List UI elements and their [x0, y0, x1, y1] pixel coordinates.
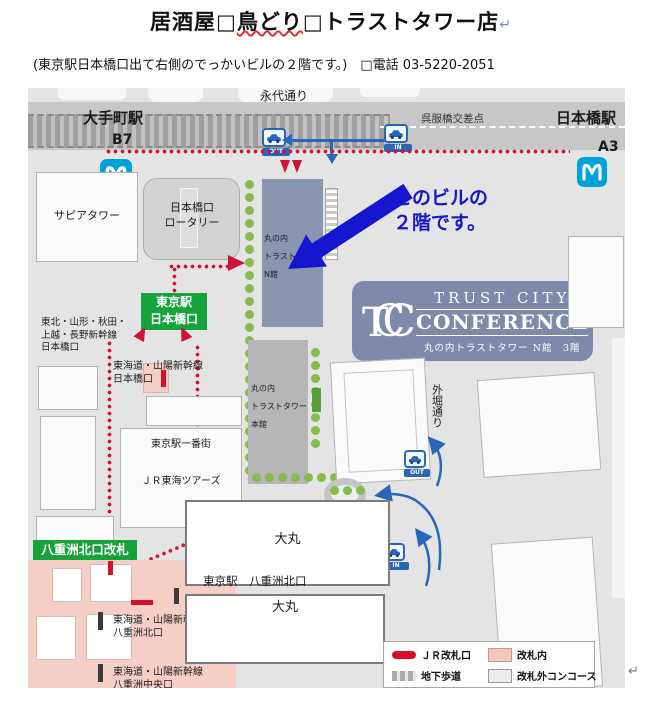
map-building [148, 88, 203, 102]
car-route-line [292, 139, 386, 142]
inside-gate-swatch-icon [488, 648, 512, 662]
map-building [38, 366, 98, 410]
tcc-wordmark: TRUST CITY CONFERENCE 丸の内トラストタワー N館 3階 [416, 289, 588, 354]
route-arrow-icon [228, 255, 245, 271]
concourse-swatch-icon [488, 669, 512, 683]
jr-gate-tick [108, 561, 113, 575]
map-building [477, 372, 602, 478]
sapia-tower-label: サピアタワー [36, 210, 138, 223]
gate-tick [98, 664, 103, 682]
tohoku-shinkansen-label: 東北・山形・秋田・ 上越・長野新幹線 日本橋口 [41, 317, 141, 355]
tokyo-nihombashi-exit-badge: 東京駅 日本橋口 [141, 293, 207, 330]
metro-m-glyph [580, 160, 604, 184]
tokyo-yaesu-north-label: 東京駅 八重洲北口 [203, 575, 353, 588]
tree-row [328, 484, 368, 497]
title-part1: 居酒屋□ [150, 10, 237, 34]
walking-route-dotted [172, 266, 177, 294]
gate-tick [174, 588, 179, 604]
map-legend: ＪＲ改札口 改札内 地下歩道 改札外コンコース [383, 641, 595, 688]
underpass-swatch-icon [392, 671, 416, 681]
gofukubashi-crossing-label: 呉服橋交差点 [421, 113, 484, 126]
otemachi-station-label: 大手町駅 [83, 112, 143, 125]
station-area-map: 永代通り 大手町駅 B7 呉服橋交差点 日本橋駅 A3 OUT IN [28, 88, 625, 688]
eitai-dori-label: 永代通り [260, 90, 360, 103]
map-building [58, 88, 126, 100]
title-part2: □トラストタワー店 [303, 10, 499, 34]
parking-car-icon [384, 124, 408, 143]
nihombashi-station-label: 日本橋駅 [556, 112, 616, 125]
map-building [52, 568, 82, 602]
map-building [568, 236, 624, 328]
legend-item-inside-gate: 改札内 [488, 647, 600, 662]
tcc-conference-badge: TCC TRUST CITY CONFERENCE 丸の内トラストタワー N館 … [352, 281, 593, 361]
jr-gate-swatch-icon [392, 651, 416, 659]
tokaido-yaesu-center-label: 東海道・山陽新幹線 八重洲中央口 [113, 667, 218, 688]
tcc-trust-city: TRUST CITY [416, 289, 588, 310]
jr-tours-label: ＪＲ東海ツアーズ [120, 476, 242, 489]
ichibangai-label: 東京駅一番街 [120, 439, 242, 452]
daimaru-lower-label: 大丸 [185, 602, 385, 615]
map-building [612, 338, 625, 598]
jr-gate-tick [131, 600, 153, 605]
access-map-document: 居酒屋□鳥どり□トラストタワー店↵ (東京駅日本橋口出て右側のでっかいビルの２階… [0, 0, 662, 702]
car-route-arrow-icon [282, 134, 292, 146]
nihombashi-exit-a3-label: A3 [598, 141, 619, 154]
text-cursor-return-mark: ↵ [628, 664, 639, 679]
map-building [40, 416, 96, 510]
subtitle-phone-line: (東京駅日本橋口出て右側のでっかいビルの２階です。) □電話 03-5220-2… [33, 54, 643, 73]
car-route-curve [388, 526, 436, 588]
rotary-label: 日本橋口 ロータリー [148, 200, 236, 230]
yaesu-north-gate-badge: 八重洲北口改札 [33, 540, 137, 560]
map-building [146, 396, 242, 426]
legend-item-underpass: 地下歩道 [392, 668, 488, 683]
car-route-arrow-icon [326, 154, 338, 164]
tcc-monogram-logo: TCC [362, 296, 416, 347]
legend-item-jr-gate: ＪＲ改札口 [392, 647, 488, 662]
walking-route-dotted [107, 340, 112, 540]
tcc-conference: CONFERENCE [416, 310, 588, 336]
return-mark-icon: ↵ [499, 17, 512, 33]
map-building [36, 616, 76, 660]
route-arrow-icon [292, 160, 302, 173]
trust-tower-main-label: 丸の内 トラストタワー 本館 [251, 380, 307, 434]
walking-route-dotted [168, 264, 230, 269]
gate-tick [98, 612, 103, 630]
tokyo-metro-icon [577, 157, 607, 187]
map-building [360, 88, 420, 97]
big-blue-arrow-icon [278, 181, 418, 277]
page-title: 居酒屋□鳥どり□トラストタワー店↵ [0, 6, 662, 36]
title-misspelled-word: 鳥どり [237, 10, 303, 34]
route-arrow-icon [280, 160, 290, 173]
daimaru-upper-label: 大丸 [185, 534, 390, 547]
walking-route-dotted [105, 149, 570, 154]
tcc-address: 丸の内トラストタワー N館 3階 [416, 336, 588, 354]
otemachi-exit-b7-label: B7 [112, 134, 132, 147]
tokaido-nihombashi-label: 東海道・山陽新幹線 日本橋口 [113, 361, 213, 386]
hedge [312, 388, 321, 412]
legend-item-concourse: 改札外コンコース [488, 668, 600, 683]
